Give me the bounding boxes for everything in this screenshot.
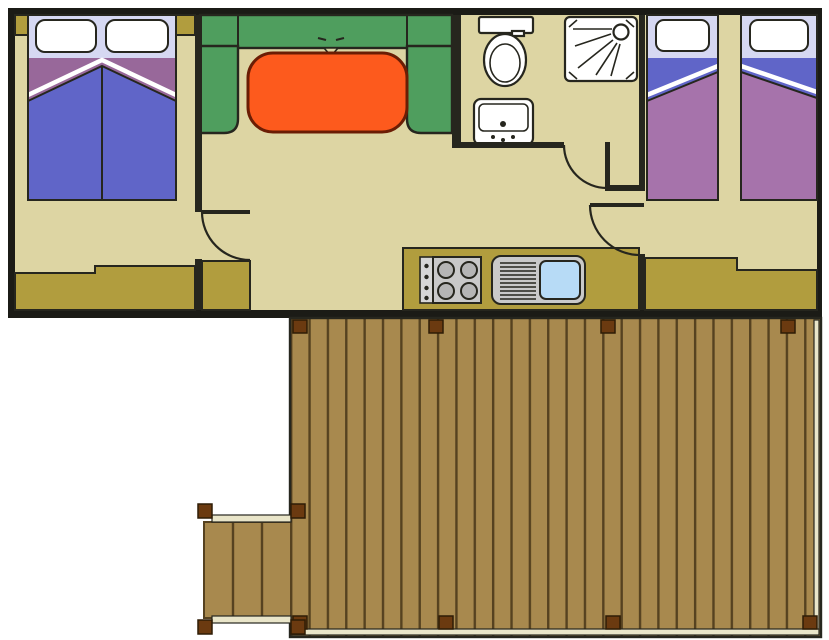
washbasin-drain xyxy=(500,121,506,127)
burner-4 xyxy=(461,283,477,299)
hob xyxy=(420,257,481,303)
house xyxy=(8,8,822,318)
bolt xyxy=(606,616,620,629)
twin-left-pillow xyxy=(656,20,709,51)
double-bed xyxy=(28,15,176,200)
sink-basin xyxy=(540,261,580,299)
step-post-tl xyxy=(198,504,212,518)
hob-knob-3 xyxy=(424,286,428,290)
sofa-right-arm xyxy=(407,46,452,133)
deck-planks xyxy=(290,318,821,637)
floor-plan-canvas xyxy=(0,0,829,640)
burner-3 xyxy=(438,283,454,299)
sofa-left-arm xyxy=(200,46,238,133)
step-bottom-rail xyxy=(212,616,291,623)
shower-head-icon xyxy=(614,25,629,40)
washbasin xyxy=(474,99,533,145)
step-top-rail xyxy=(212,515,291,522)
hob-knob-2 xyxy=(424,275,428,279)
bolt xyxy=(439,616,453,629)
living-table xyxy=(248,53,407,132)
step-post-bl xyxy=(198,620,212,634)
bedroom-wardrobe xyxy=(15,266,195,310)
deck-right-trim xyxy=(814,320,819,633)
step-platform xyxy=(198,504,305,634)
hob-knob-4 xyxy=(424,296,428,300)
step-wood xyxy=(204,522,291,618)
bolt xyxy=(601,320,615,333)
corner-post-right xyxy=(174,15,195,35)
wall-bedroom2-upper xyxy=(639,15,645,191)
step-post-tr xyxy=(291,504,305,518)
bolt xyxy=(803,616,817,629)
wall-bathroom-bottom xyxy=(452,142,564,148)
burner-1 xyxy=(438,262,454,278)
wall-bathroom-jog-vertical xyxy=(605,142,610,190)
twin-right-pillow xyxy=(750,20,808,51)
burner-2 xyxy=(461,262,477,278)
shower-cabin xyxy=(565,17,637,81)
washbasin-knob-mid xyxy=(501,138,505,142)
twin-bed-left xyxy=(647,15,718,200)
twin-bed-right xyxy=(741,15,817,200)
wall-bathroom-jog-horizontal xyxy=(605,185,642,191)
wall-bathroom-left xyxy=(452,15,461,148)
deck-bottom-trim xyxy=(292,629,819,635)
room-kitchen xyxy=(403,248,639,310)
terrace-deck xyxy=(198,318,821,637)
bolt xyxy=(429,320,443,333)
washbasin-knob-left xyxy=(491,135,495,139)
wall-bedroom1-lower xyxy=(195,259,202,310)
kitchen-sink xyxy=(492,256,585,304)
bolt xyxy=(781,320,795,333)
wall-bedroom2-lower xyxy=(639,254,645,310)
washbasin-knob-right xyxy=(511,135,515,139)
pillow-left xyxy=(36,20,96,52)
hob-knob-1 xyxy=(424,264,428,268)
bolt xyxy=(293,320,307,333)
floor-plan-svg xyxy=(0,0,829,640)
living-cabinet xyxy=(202,261,250,310)
step-post-br xyxy=(291,620,305,634)
wall-bedroom1-upper xyxy=(195,15,202,212)
pillow-right xyxy=(106,20,168,52)
